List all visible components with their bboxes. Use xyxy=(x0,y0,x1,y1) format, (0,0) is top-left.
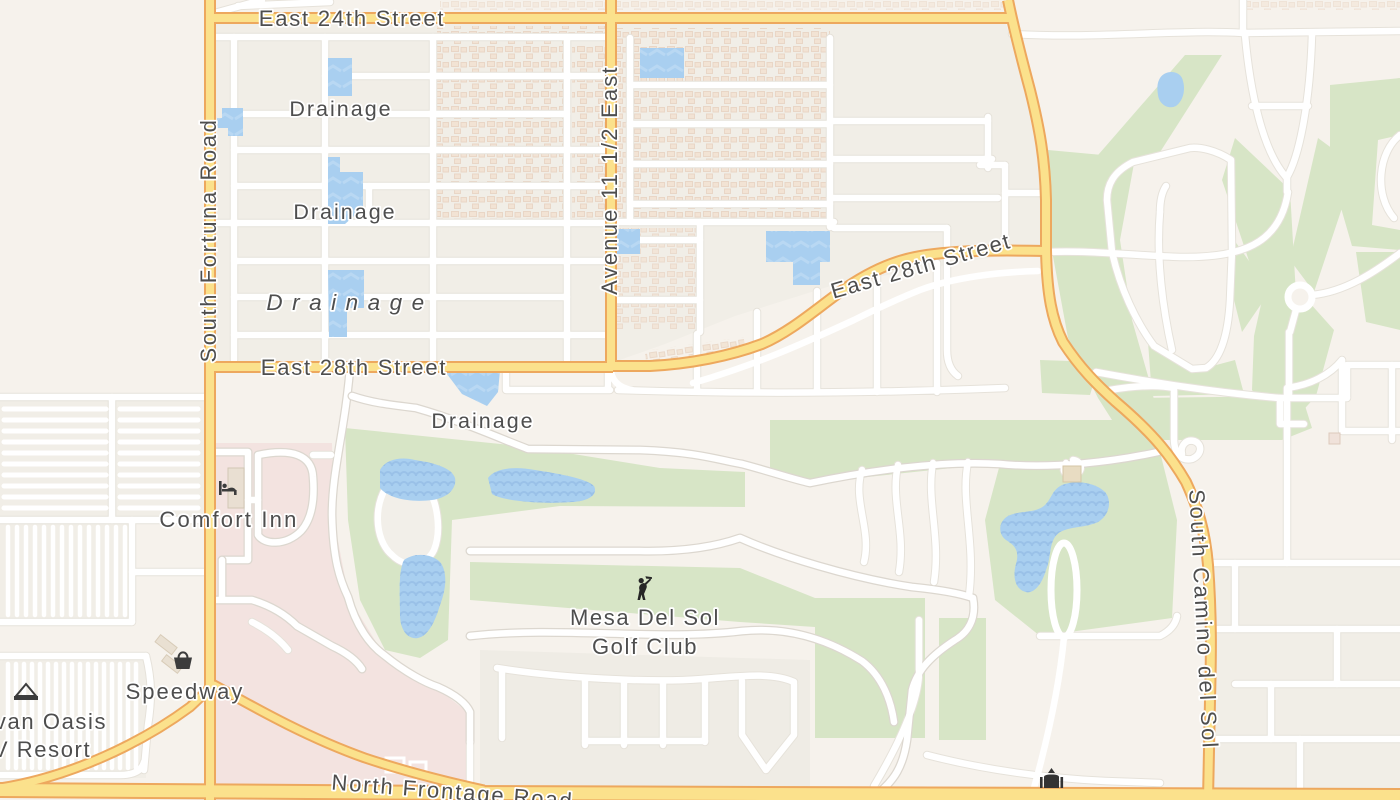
svg-text:Drainage: Drainage xyxy=(289,97,392,121)
svg-text:East 24th Street: East 24th Street xyxy=(259,6,446,31)
svg-text:South Fortuna Road: South Fortuna Road xyxy=(196,118,221,363)
svg-text:Speedway: Speedway xyxy=(126,679,245,704)
svg-text:Drainage: Drainage xyxy=(293,200,396,224)
svg-text:Mesa Del Sol: Mesa Del Sol xyxy=(570,605,720,630)
svg-text:East 28th Street: East 28th Street xyxy=(261,355,448,380)
svg-text:Drainage: Drainage xyxy=(431,409,534,433)
svg-text:Avenue 11 1/2 East: Avenue 11 1/2 East xyxy=(597,65,622,295)
svg-text:Drainage: Drainage xyxy=(266,290,433,315)
svg-text:V Resort: V Resort xyxy=(0,737,91,762)
svg-text:van Oasis: van Oasis xyxy=(0,709,107,734)
svg-text:Comfort Inn: Comfort Inn xyxy=(159,507,298,532)
svg-text:Golf Club: Golf Club xyxy=(592,634,698,659)
